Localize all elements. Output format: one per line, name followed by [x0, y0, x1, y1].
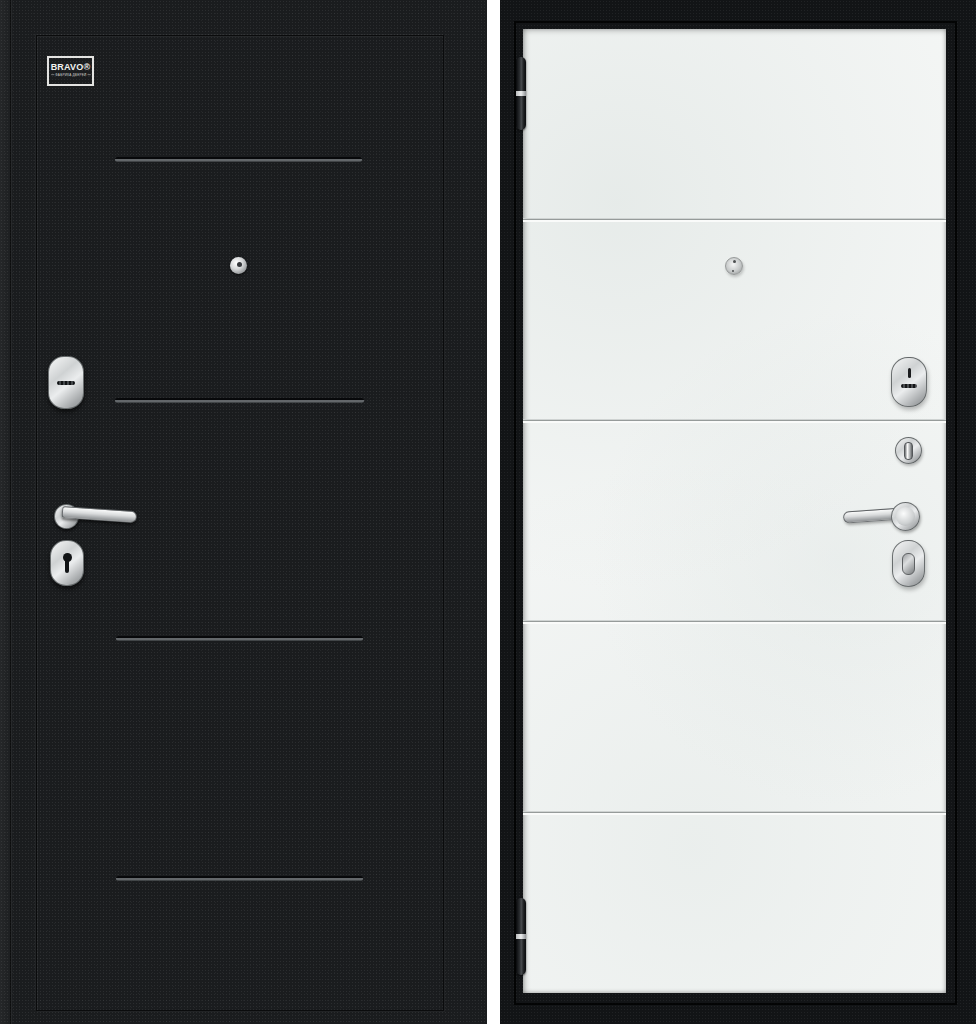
- panel-groove: [523, 620, 946, 624]
- hinge-top: [516, 57, 526, 130]
- panel-groove: [523, 811, 946, 815]
- panel-groove: [116, 876, 363, 881]
- door-product-photo: BRAVO® ФАБРИКА ДВЕРЕЙ: [0, 0, 976, 1024]
- panel-groove: [523, 218, 946, 222]
- panel-groove: [523, 419, 946, 423]
- brand-logo-plate: BRAVO® ФАБРИКА ДВЕРЕЙ: [47, 56, 94, 86]
- peephole-icon: [725, 257, 743, 275]
- brand-name: BRAVO®: [51, 63, 91, 72]
- door-exterior-black: BRAVO® ФАБРИКА ДВЕРЕЙ: [0, 0, 487, 1024]
- peephole-icon: [230, 257, 247, 274]
- door-gap: [487, 0, 500, 1024]
- brand-tagline: ФАБРИКА ДВЕРЕЙ: [51, 73, 90, 76]
- inner-panel-outline: [36, 35, 444, 1011]
- handle-rose: [891, 502, 920, 531]
- thumbturn-knob: [895, 437, 922, 464]
- keyhole-escutcheon: [50, 540, 84, 586]
- lever-lock-escutcheon: [48, 356, 84, 409]
- door-interior-white: [500, 0, 976, 1024]
- keyway-escutcheon: [891, 357, 927, 407]
- panel-groove: [115, 398, 364, 403]
- hinge-bottom: [516, 898, 526, 975]
- panel-groove: [115, 157, 362, 162]
- panel-groove: [116, 636, 363, 641]
- cylinder-escutcheon: [892, 540, 925, 587]
